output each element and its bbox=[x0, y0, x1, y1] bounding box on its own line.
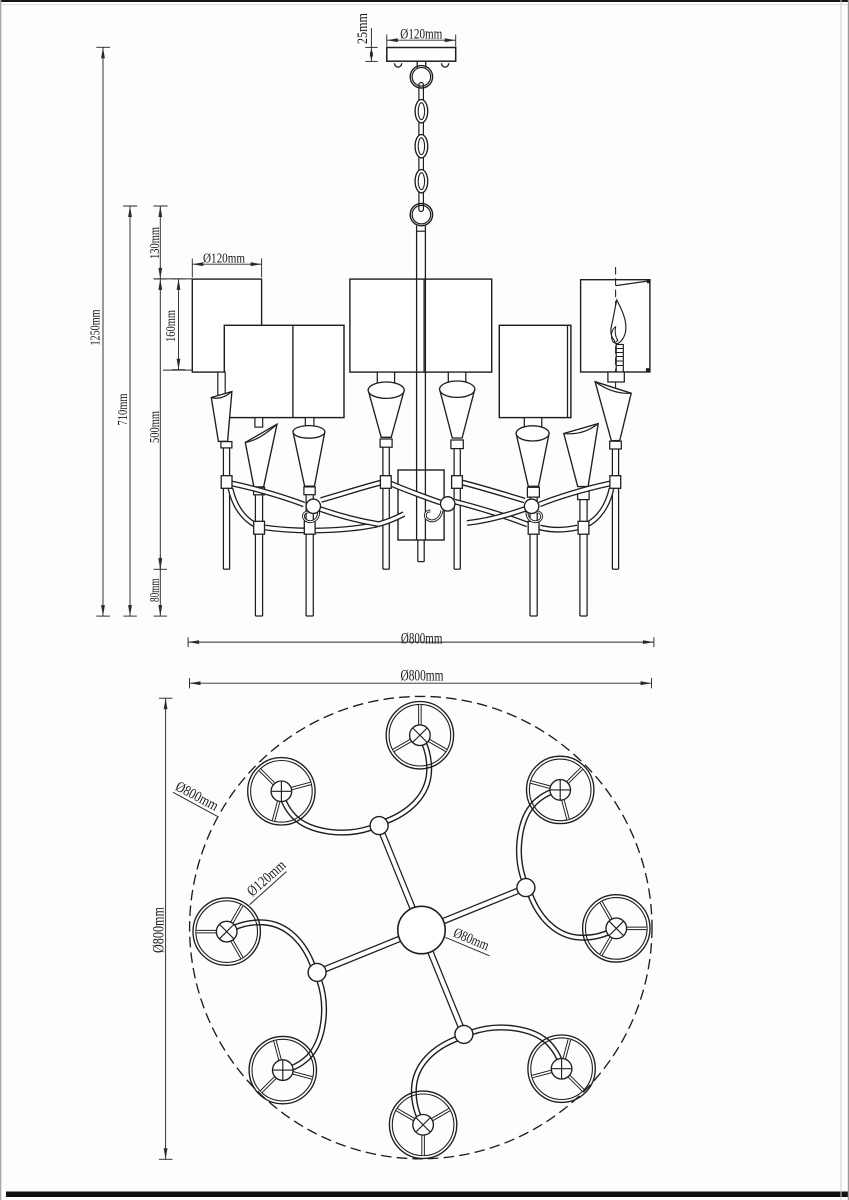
svg-text:Ø120mm: Ø120mm bbox=[203, 250, 245, 265]
svg-text:80mm: 80mm bbox=[148, 578, 163, 602]
svg-text:1250mm: 1250mm bbox=[89, 309, 104, 345]
svg-text:Ø800mm: Ø800mm bbox=[401, 630, 443, 647]
svg-text:130mm: 130mm bbox=[148, 227, 163, 259]
svg-text:160mm: 160mm bbox=[164, 310, 179, 342]
svg-text:710mm: 710mm bbox=[116, 393, 131, 425]
svg-text:500mm: 500mm bbox=[148, 411, 163, 443]
svg-text:Ø800mm: Ø800mm bbox=[151, 907, 168, 953]
svg-text:Ø120mm: Ø120mm bbox=[400, 27, 442, 43]
svg-text:25mm: 25mm bbox=[355, 13, 371, 44]
svg-text:Ø800mm: Ø800mm bbox=[401, 668, 444, 685]
